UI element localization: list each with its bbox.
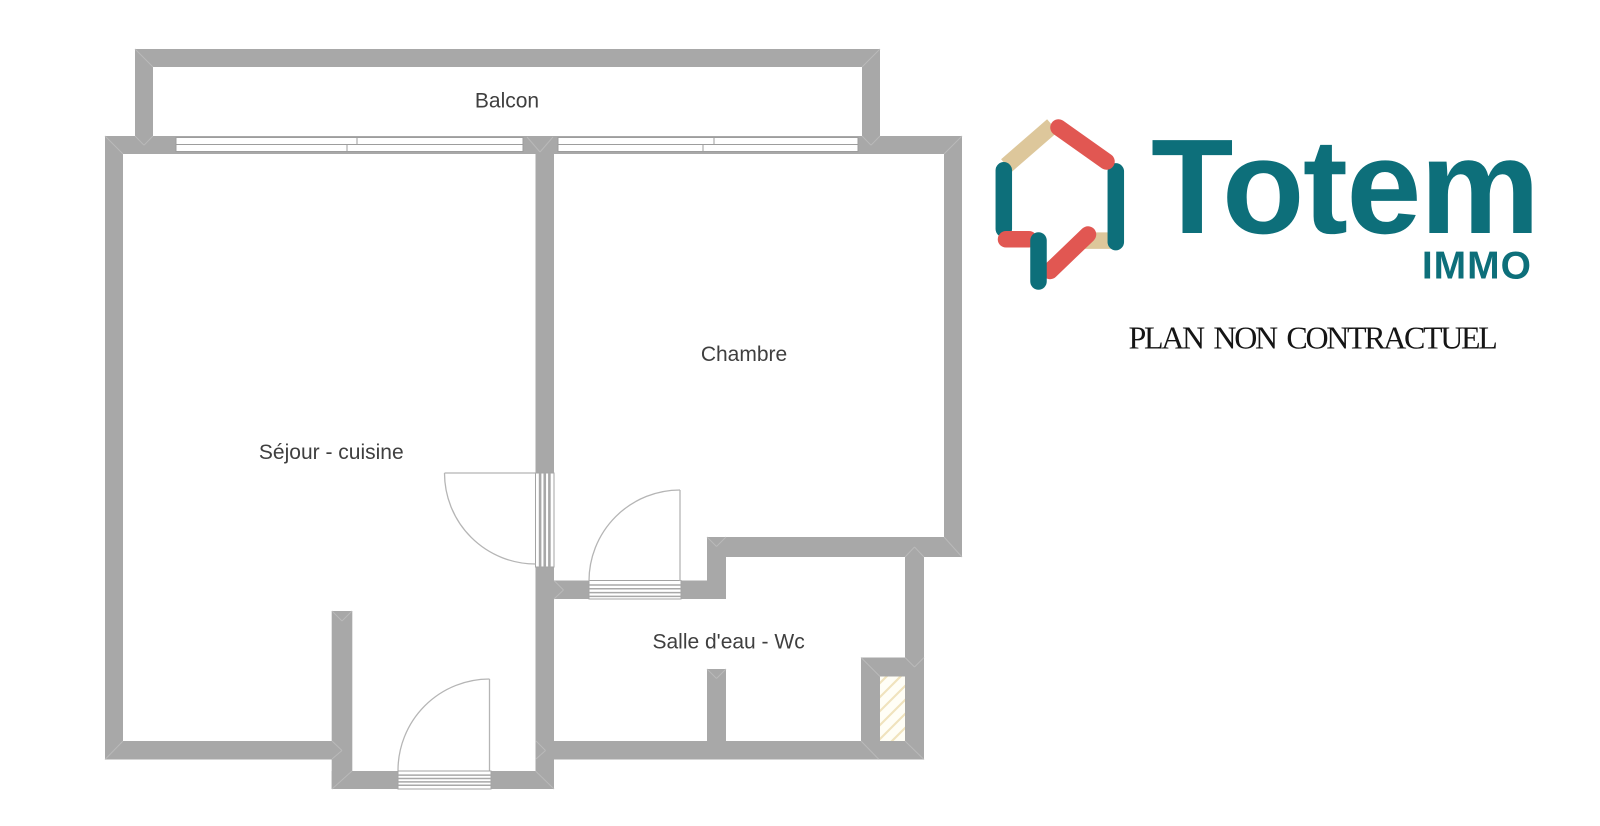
svg-text:Balcon: Balcon	[475, 90, 539, 113]
svg-text:Chambre: Chambre	[701, 343, 787, 366]
svg-text:IMMO: IMMO	[1422, 245, 1532, 288]
svg-text:Séjour - cuisine: Séjour - cuisine	[259, 441, 404, 464]
svg-text:Salle d'eau - Wc: Salle d'eau - Wc	[652, 631, 804, 654]
svg-text:PLAN NON CONTRACTUEL: PLAN NON CONTRACTUEL	[1129, 320, 1497, 356]
svg-text:Totem: Totem	[1151, 111, 1538, 262]
